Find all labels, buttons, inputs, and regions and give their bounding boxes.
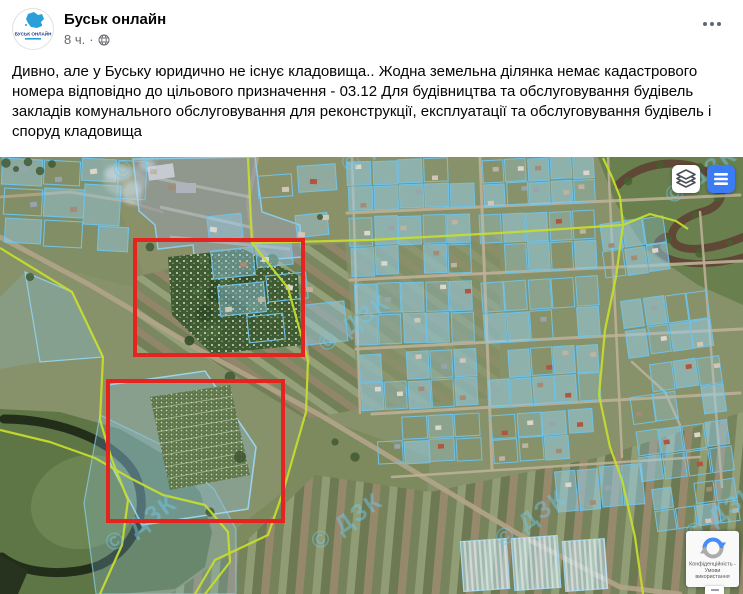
page-name-link[interactable]: Буськ онлайн bbox=[64, 11, 166, 29]
post-header: БУСЬК ОНЛАЙН Буськ онлайн 8 ч. · bbox=[0, 0, 743, 50]
highlight-rect-2 bbox=[106, 379, 285, 523]
post-timestamp[interactable]: 8 ч. bbox=[64, 32, 85, 47]
post-menu-button[interactable] bbox=[699, 16, 725, 32]
page-avatar[interactable]: БУСЬК ОНЛАЙН bbox=[12, 8, 54, 50]
recaptcha-icon bbox=[700, 535, 726, 561]
meta-separator: · bbox=[89, 32, 93, 47]
highlight-rect-1 bbox=[133, 238, 305, 357]
recaptcha-privacy-terms: Конфіденційність - Умови використання bbox=[689, 562, 737, 581]
map-control-partial[interactable] bbox=[705, 586, 724, 594]
recaptcha-badge[interactable]: Конфіденційність - Умови використання bbox=[686, 531, 739, 587]
map-menu-button[interactable] bbox=[707, 165, 735, 193]
hamburger-icon bbox=[707, 165, 735, 193]
globe-icon bbox=[98, 34, 110, 46]
ellipsis-icon bbox=[703, 22, 707, 26]
post-image-map[interactable]: © ДЗК© ДЗК© ДЗК© ДЗК© ДЗК© ДЗК© ДЗК© ДЗК… bbox=[0, 157, 743, 594]
post-text: Дивно, але у Буську юридично не існує кл… bbox=[12, 62, 731, 142]
layers-icon bbox=[672, 165, 700, 193]
layers-button[interactable] bbox=[672, 165, 700, 193]
page-avatar-logo: БУСЬК ОНЛАЙН bbox=[13, 9, 53, 49]
page-avatar-text: БУСЬК ОНЛАЙН bbox=[15, 30, 52, 37]
satellite-map: © ДЗК© ДЗК© ДЗК© ДЗК© ДЗК© ДЗК© ДЗК© ДЗК bbox=[0, 157, 743, 594]
